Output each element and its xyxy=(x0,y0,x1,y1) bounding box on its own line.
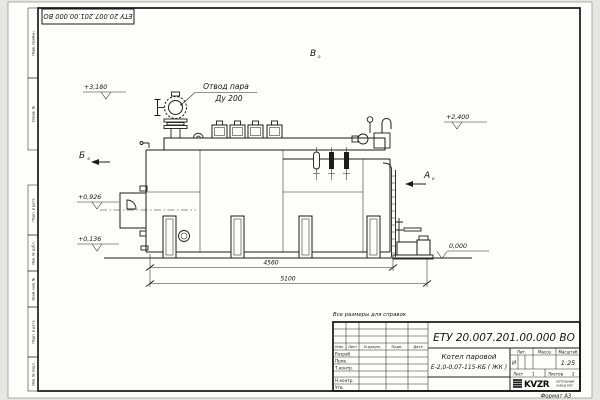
header-lit: Лит. xyxy=(517,350,526,355)
sheets-label: Листов xyxy=(548,371,564,376)
level-text: +2,400 xyxy=(446,114,469,121)
company-logo: KVZR xyxy=(524,380,550,390)
blueprint-svg: Перв. примен. Справ. № Подп. и дата Инв.… xyxy=(0,0,600,400)
level-text: 0,000 xyxy=(449,243,467,250)
col-header-list: Лист xyxy=(348,345,357,349)
callout-line2: Ду 200 xyxy=(215,94,243,103)
scale-value: 1:25 xyxy=(561,359,576,367)
col-header-ndoc: N докум. xyxy=(364,345,381,349)
view-b-label: Б xyxy=(79,151,85,161)
role-razrab: Разраб. xyxy=(335,352,351,357)
strip-label: Взам. инв. № xyxy=(31,277,35,300)
view-v-label: В xyxy=(310,49,316,59)
strip-label: Инв. № подл. xyxy=(31,362,35,385)
role-prov: Пров. xyxy=(335,359,347,364)
dim-text: 5100 xyxy=(280,276,295,283)
doc-number: ЕТУ 20.007.201.00.000 ВО xyxy=(433,332,575,344)
drawing-sheet: Перв. примен. Справ. № Подп. и дата Инв.… xyxy=(0,0,600,400)
role-tkontr: Т.контр. xyxy=(334,366,353,371)
role-utv: Утв. xyxy=(335,385,344,390)
reference-note: Все размеры для справок xyxy=(333,312,407,318)
top-stamp-number: ЕТУ 20.007.201.00.000 ВО xyxy=(43,12,132,20)
strip-label: Инв. № дубл. xyxy=(31,241,35,264)
product-name-line1: Котел паровой xyxy=(442,353,497,361)
company-line2: ЗАВОД РЭП xyxy=(556,384,574,388)
format-label: Формат А3 xyxy=(541,394,572,400)
lit-value: И xyxy=(512,361,516,367)
strip-label: Подп. и дата xyxy=(31,320,35,343)
product-name-line2: Е-2,0-0,07-115-КБ ( ЖК ) xyxy=(431,364,507,371)
header-mass: Масса xyxy=(538,350,551,355)
level-text: +3,180 xyxy=(84,84,107,91)
sheet-label: Лист xyxy=(513,371,524,376)
dim-text: 4560 xyxy=(263,260,278,267)
role-nkontr: Н.контр. xyxy=(335,378,354,383)
strip-label: Подп. и дата xyxy=(31,198,35,221)
level-text: +0,926 xyxy=(78,194,101,201)
col-header-izm: Изм. xyxy=(335,345,343,349)
level-text: +0,136 xyxy=(78,236,101,243)
col-header-data: Дата xyxy=(413,345,422,349)
strip-label: Перв. примен. xyxy=(31,30,35,55)
view-a-label: А xyxy=(423,171,430,181)
callout-line1: Отвод пара xyxy=(203,82,249,91)
col-header-podp: Подп. xyxy=(392,345,403,349)
strip-label: Справ. № xyxy=(31,105,35,122)
header-scale: Масштаб xyxy=(558,350,578,355)
